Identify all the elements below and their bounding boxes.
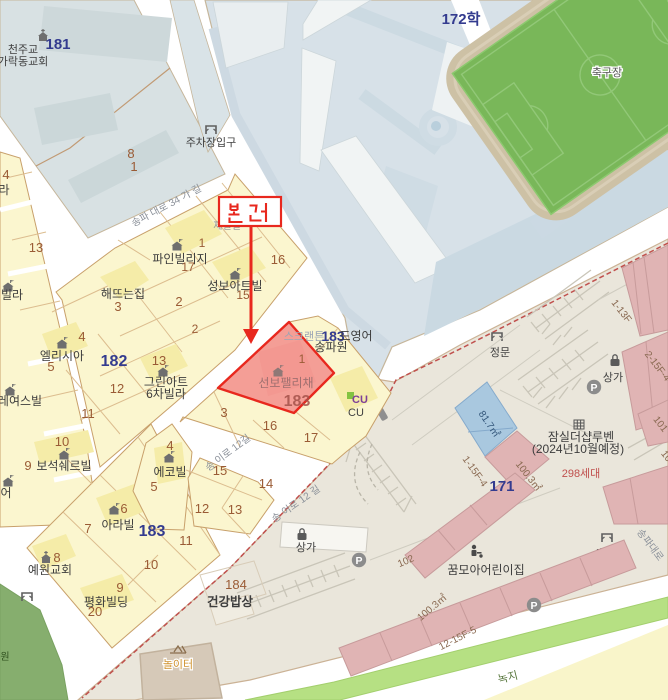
svg-text:184: 184 xyxy=(225,577,247,592)
svg-text:16: 16 xyxy=(271,252,285,267)
svg-text:12: 12 xyxy=(110,381,124,396)
svg-text:선보팰리채: 선보팰리채 xyxy=(258,376,313,390)
svg-text:17: 17 xyxy=(304,430,318,445)
svg-text:14: 14 xyxy=(259,476,273,491)
svg-text:상가: 상가 xyxy=(296,541,316,554)
svg-text:예원교회: 예원교회 xyxy=(28,563,72,577)
svg-text:상가: 상가 xyxy=(603,371,623,384)
svg-text:15: 15 xyxy=(236,288,250,302)
svg-text:10: 10 xyxy=(55,434,69,449)
svg-text:1: 1 xyxy=(299,352,306,366)
svg-text:5: 5 xyxy=(47,359,54,374)
svg-text:건강밥상: 건강밥상 xyxy=(207,594,254,609)
svg-text:해뜨는집: 해뜨는집 xyxy=(101,287,145,301)
svg-text:10: 10 xyxy=(144,557,158,572)
svg-text:183: 183 xyxy=(139,523,166,540)
svg-text:9: 9 xyxy=(24,458,31,473)
svg-text:아라빌: 아라빌 xyxy=(101,518,134,532)
svg-text:CU: CU xyxy=(352,394,368,406)
svg-text:3: 3 xyxy=(114,299,121,314)
svg-text:주차장입구: 주차장입구 xyxy=(186,136,237,149)
svg-text:성보아트빌: 성보아트빌 xyxy=(207,279,262,293)
svg-text:6차빌라: 6차빌라 xyxy=(146,387,186,401)
svg-text:천주교: 천주교 xyxy=(8,42,38,56)
svg-text:298세대: 298세대 xyxy=(562,467,601,480)
svg-text:4: 4 xyxy=(78,329,85,344)
svg-text:빌라: 빌라 xyxy=(1,288,23,302)
svg-text:(2024년10월예정): (2024년10월예정) xyxy=(532,442,624,456)
svg-text:172학: 172학 xyxy=(442,11,481,28)
svg-text:11: 11 xyxy=(81,406,95,421)
svg-text:16: 16 xyxy=(263,418,277,433)
svg-text:183: 183 xyxy=(284,393,311,410)
svg-text:라: 라 xyxy=(0,183,10,197)
svg-text:11: 11 xyxy=(179,533,193,548)
svg-text:13: 13 xyxy=(29,240,43,255)
svg-text:182: 182 xyxy=(101,353,128,370)
svg-text:9: 9 xyxy=(116,580,123,595)
svg-text:축구장: 축구장 xyxy=(592,66,622,79)
svg-text:6: 6 xyxy=(120,501,127,516)
svg-text:송파원: 송파원 xyxy=(314,340,347,354)
svg-text:17: 17 xyxy=(181,260,195,274)
svg-text:가락동교회: 가락동교회 xyxy=(0,55,48,68)
svg-text:CU: CU xyxy=(348,407,364,419)
svg-text:어: 어 xyxy=(0,486,11,500)
svg-text:정문: 정문 xyxy=(490,346,510,359)
svg-text:1: 1 xyxy=(130,159,137,174)
svg-text:7: 7 xyxy=(84,521,91,536)
svg-text:20: 20 xyxy=(88,604,102,619)
svg-text:13: 13 xyxy=(152,353,166,368)
svg-text:3: 3 xyxy=(220,405,227,420)
svg-text:원: 원 xyxy=(0,651,9,663)
svg-text:놀이터: 놀이터 xyxy=(163,658,193,671)
svg-text:파인빌리지: 파인빌리지 xyxy=(152,252,207,266)
svg-text:2: 2 xyxy=(192,322,199,336)
svg-text:2: 2 xyxy=(175,294,182,309)
svg-text:4: 4 xyxy=(166,438,173,453)
svg-text:레여스빌: 레여스빌 xyxy=(0,394,42,408)
svg-text:4: 4 xyxy=(2,167,9,182)
svg-text:12: 12 xyxy=(195,501,209,516)
svg-text:에코빌: 에코빌 xyxy=(153,465,186,479)
svg-text:꿈모아어린이집: 꿈모아어린이집 xyxy=(447,563,524,577)
svg-text:보석쉐르빌: 보석쉐르빌 xyxy=(36,459,91,473)
svg-text:171: 171 xyxy=(489,478,514,495)
svg-text:1: 1 xyxy=(199,236,206,250)
svg-text:13: 13 xyxy=(228,502,242,517)
svg-text:5: 5 xyxy=(150,479,157,494)
svg-text:181: 181 xyxy=(45,36,70,53)
